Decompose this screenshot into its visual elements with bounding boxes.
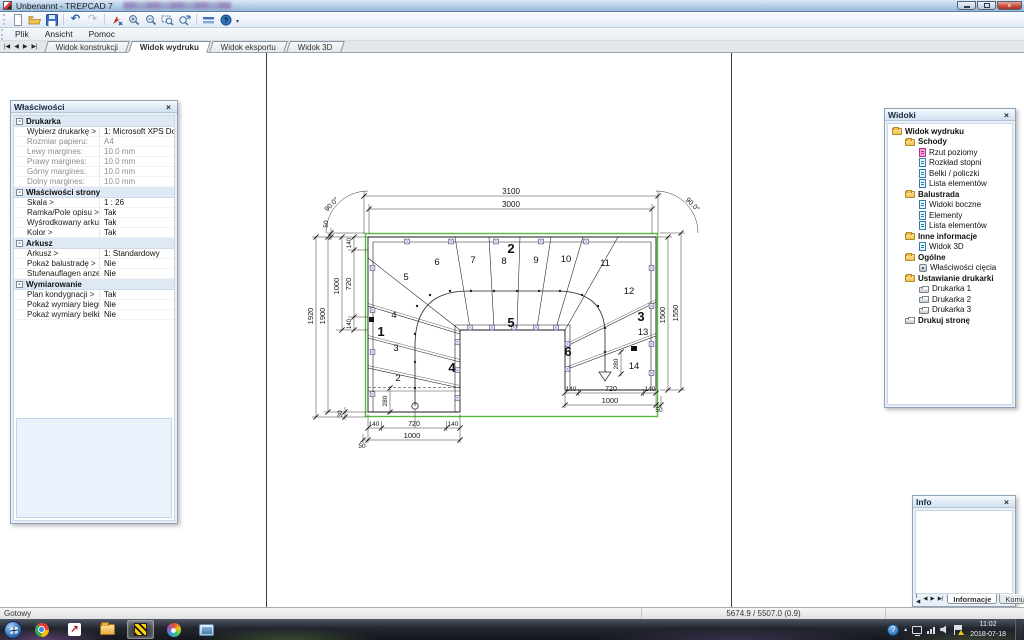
tree-item-lista-elementow-2[interactable]: Lista elementów [888,221,1012,232]
section-marks [369,317,637,351]
close-icon[interactable]: × [163,102,174,112]
tree-label: Ustawianie drukarki [918,274,994,283]
next-tab-icon[interactable]: ▶ [930,596,934,602]
group-label: Arkusz [26,239,53,248]
property-row[interactable]: Skala >1 : 26 [14,198,174,208]
tree-label: Drukarka 1 [932,284,971,293]
step-number: 14 [629,361,640,372]
collapse-icon[interactable]: - [16,189,23,196]
collapse-icon[interactable]: - [16,281,23,288]
menubar-grip[interactable] [1,29,4,40]
close-button[interactable]: × [997,1,1022,10]
step-number: 6 [434,257,439,268]
tree-item-balustrada[interactable]: Balustrada [888,189,1012,200]
tab-widok-wydruku[interactable]: Widok wydruku [128,41,211,53]
panel-title: Widoki [888,110,916,120]
property-label: Lewy margines: [14,147,100,156]
group-label: Właściwości strony [26,188,100,197]
folder-icon [905,139,915,146]
property-row[interactable]: Wyśrodkowany arkusz...Tak [14,218,174,228]
new-document-button[interactable] [9,13,26,27]
property-row[interactable]: Prawy margines:10.0 mm [14,157,174,167]
tab-navigation: |◀ ◀ ▶ ▶| [0,43,46,52]
app-icon [3,1,12,10]
property-value: Tak [100,290,116,299]
trepcad-icon [134,623,147,636]
paint-icon [167,623,181,637]
close-icon: × [1007,2,1011,10]
zoom-in-icon [128,14,140,26]
property-row[interactable]: Kolor >Tak [14,228,174,238]
beam-number: 1 [377,324,384,339]
folder-icon [905,275,915,282]
printer-icon [919,297,929,303]
tab-widok-konstrukcji[interactable]: Widok konstrukcji [44,41,130,52]
menubar: Plik Ansicht Pomoc [0,28,1024,41]
dim-label: 1920 [306,308,315,325]
clock-time: 11:02 [970,620,1006,629]
folder-icon [905,233,915,240]
maximize-button[interactable] [977,1,996,10]
dim-label: 50 [323,220,330,228]
property-value: 1 : 26 [100,198,124,207]
dim-label: 140 [369,421,380,428]
tree-item-lista-elementow[interactable]: Lista elementów [888,179,1012,190]
redo-icon: ↷ [88,14,97,25]
zoom-window-icon [161,14,174,26]
property-label: Wybierz drukarkę > [14,127,100,136]
move-tool-button[interactable] [108,13,125,27]
step-number: 8 [501,256,506,267]
property-group-strony[interactable]: -Właściwości strony [14,187,174,198]
step-number: 11 [600,258,610,269]
paper-edge-left [266,53,267,607]
close-icon[interactable]: × [1001,497,1012,507]
tree-item-drukarka-2[interactable]: Drukarka 2 [888,294,1012,305]
properties-panel: Właściwości × -Drukarka Wybierz drukarkę… [10,100,178,524]
navigator-icon: ↗ [68,623,81,636]
page-icon [919,169,926,178]
status-text: Gotowy [0,609,641,618]
beam-number: 3 [637,309,644,324]
views-panel: Widoki × Widok wydruku Schody Rzut pozio… [884,108,1016,408]
tree-item-inne-informacje[interactable]: Inne informacje [888,231,1012,242]
property-row[interactable]: Plan kondygnacji >Tak [14,290,174,300]
dim-label: 720 [344,278,353,291]
clock-date: 2018-07-18 [970,630,1006,639]
redo-button[interactable]: ↷ [84,13,101,27]
page-icon [919,221,926,230]
open-button[interactable] [26,13,43,27]
last-tab-icon[interactable]: ▶| [31,43,37,50]
minimize-icon [964,6,970,8]
measure-button[interactable] [200,13,217,27]
property-label: Kolor > [14,228,100,237]
tree-item-wlasciwosci-ciecia[interactable]: Właściwości cięcia [888,263,1012,274]
tree-item-rzut-poziomy[interactable]: Rzut poziomy [888,147,1012,158]
property-label: Pokaż wymiary biegu > [14,300,100,309]
property-row[interactable]: Pokaż wymiary belki >Nie [14,310,174,320]
save-icon [46,14,58,26]
taskbar-navigator-button[interactable]: ↗ [61,620,88,639]
dim-label: 280 [382,395,389,406]
last-tab-icon[interactable]: ▶| [938,596,944,602]
dim-label: 140 [347,237,353,248]
tree-item-drukarka-1[interactable]: Drukarka 1 [888,284,1012,295]
step-number: 13 [638,327,649,338]
folder-icon [905,254,915,261]
tab-label: Widok 3D [298,43,333,52]
info-tab-komunikaty[interactable]: Komun [999,594,1024,604]
property-value: Tak [100,208,116,217]
property-grid: -Drukarka Wybierz drukarkę >1: Microsoft… [14,116,174,320]
paper-edge-right [731,53,732,607]
dim-label: 1500 [658,307,667,324]
property-label: Plan kondygnacji > [14,290,100,299]
info-content [915,510,1013,594]
property-label: Ramka/Pole opisu > [14,208,100,217]
tree-label: Schody [918,137,947,146]
property-label: Arkusz > [14,249,100,258]
tab-label: Informacje [953,595,991,604]
toolbar-separator [63,14,64,25]
dim-label: 3100 [502,187,520,196]
tab-label: Widok eksportu [221,43,276,52]
tree-item-widok-3d[interactable]: Widok 3D [888,242,1012,253]
photo-viewer-icon [199,624,214,636]
printer-icon [919,287,929,293]
property-row[interactable]: Ramka/Pole opisu >Tak [14,208,174,218]
undo-button[interactable]: ↶ [67,13,84,27]
step-number: 9 [533,255,538,266]
property-value: 1: Standardowy [100,249,160,258]
close-icon[interactable]: × [1001,110,1012,120]
help-button[interactable]: ? [217,13,234,27]
dim-label: 1000 [602,396,619,405]
property-row[interactable]: Pokaż wymiary biegu >Nie [14,300,174,310]
property-value: 10.0 mm [100,167,135,176]
property-label: Pokaż balustradę > [14,259,100,268]
toolbar-separator [104,14,105,25]
page-icon [919,158,926,167]
dim-label: 1000 [332,278,341,295]
drawing-canvas[interactable]: 3100 3000 90.0° 90.0° 1920 1900 1000 720… [0,53,1024,607]
tab-widok-3d[interactable]: Widok 3D [286,41,344,52]
folder-icon [892,128,902,135]
open-folder-icon [28,14,41,26]
angle-label: 90.0° [323,196,340,213]
menu-pomoc[interactable]: Pomoc [81,28,123,40]
page-icon [919,242,926,251]
property-row[interactable]: Stufenauflagen anzeig...Nie [14,269,174,279]
beam-number: 4 [448,360,456,375]
property-description-box [16,418,172,518]
taskbar-trepcad-button[interactable] [127,620,154,639]
step-number: 7 [470,255,475,266]
titlebar-watermark [123,2,231,9]
tree-item-belki-policzki[interactable]: Belki / policzki [888,168,1012,179]
titlebar[interactable]: Unbenannt - TREPCAD 7 × [0,0,1024,12]
tree-label: Ogólne [918,253,946,262]
tab-label: Komun [1005,595,1024,604]
tree-item-ogolne[interactable]: Ogólne [888,252,1012,263]
zoom-fit-icon [178,14,191,26]
property-value: Nie [100,300,116,309]
taskbar-explorer-button[interactable] [94,620,121,639]
property-row[interactable]: Wybierz drukarkę >1: Microsoft XPS Docum… [14,127,174,137]
tree-item-schody[interactable]: Schody [888,137,1012,148]
tree-label: Widok wydruku [905,127,964,136]
property-label: Prawy margines: [14,157,100,166]
property-value: 10.0 mm [100,157,135,166]
property-label: Górny margines: [14,167,100,176]
step-number: 3 [393,343,398,354]
toolbar-grip[interactable] [3,14,6,25]
step-number: 10 [561,254,572,265]
dim-label: 1000 [404,431,421,440]
info-panel: Info × |◀ ◀ ▶ ▶| Informacje Komun [912,495,1016,607]
dim-label: 280 [613,358,620,369]
page-icon [919,200,926,209]
tree-label: Belki / policzki [929,169,979,178]
property-value: A4 [100,137,114,146]
arrow-glyph: ↗ [70,625,78,635]
tree-label: Rozkład stopni [929,158,981,167]
network-icon[interactable] [912,626,922,634]
property-grid-empty-area [14,320,174,416]
page-icon [919,211,926,220]
tree-label: Rzut poziomy [929,148,977,157]
collapse-icon[interactable]: - [16,240,23,247]
dim-label: 30 [337,410,344,418]
property-group-arkusz[interactable]: -Arkusz [14,238,174,249]
new-document-icon [12,14,24,26]
printer-icon [905,318,915,324]
tray-clock[interactable]: 11:02 2018-07-18 [970,620,1006,639]
tree-item-rozklad-stopni[interactable]: Rozkład stopni [888,158,1012,169]
tab-label: Widok konstrukcji [55,43,117,52]
tree-label: Balustrada [918,190,959,199]
info-tab-navigation: |◀ ◀ ▶ ▶| [916,594,943,604]
signal-icon[interactable] [927,626,935,634]
move-tool-icon [111,14,123,26]
dim-label: 140 [347,318,353,329]
property-row[interactable]: Górny margines:10.0 mm [14,167,174,177]
property-value: 1: Microsoft XPS Docume... [100,127,174,136]
tree-label: Drukarka 2 [932,295,971,304]
property-row[interactable]: Lewy margines:10.0 mm [14,147,174,157]
tree-label: Drukuj stronę [918,316,970,325]
help-icon: ? [220,14,232,26]
dim-label: 50 [655,407,663,414]
toolbar-separator [196,14,197,25]
step-number: 4 [391,310,396,321]
tree-label: Lista elementów [929,179,987,188]
tree-label: Drukarka 3 [932,305,971,314]
dim-label: 140 [566,386,577,393]
menu-plik[interactable]: Plik [7,28,37,40]
zoom-fit-button[interactable] [176,13,193,27]
zoom-out-icon [145,14,157,26]
statusbar-right-cell [886,608,1024,619]
help-glyph: ? [891,626,895,634]
property-row[interactable]: Arkusz >1: Standardowy [14,249,174,259]
chrome-icon [35,623,49,637]
undo-icon: ↶ [71,14,80,25]
dim-label: 3000 [502,200,520,209]
beam-number: 5 [507,315,514,330]
toolbar-overflow-icon[interactable]: ▾ [236,18,239,27]
next-tab-icon[interactable]: ▶ [23,43,28,50]
property-label: Pokaż wymiary belki > [14,310,100,319]
views-tree: Widok wydruku Schody Rzut poziomy Rozkła… [887,123,1013,405]
prev-tab-icon[interactable]: ◀ [923,596,927,602]
action-center-flag-icon[interactable] [954,625,963,635]
save-button[interactable] [43,13,60,27]
taskbar-chrome-button[interactable] [28,620,55,639]
beam-number: 6 [564,344,571,359]
property-value: Tak [100,218,116,227]
dim-label: 1550 [671,305,680,322]
tree-label: Właściwości cięcia [930,263,996,272]
dim-label: 720 [408,421,420,428]
tree-item-drukarka-3[interactable]: Drukarka 3 [888,305,1012,316]
volume-icon[interactable] [940,625,949,634]
property-row[interactable]: Dolny margines:10.0 mm [14,177,174,187]
taskbar-photo-viewer-button[interactable] [193,620,220,639]
step-number: 12 [624,286,635,297]
start-button[interactable] [4,621,22,639]
step-number: 2 [395,373,400,384]
tab-widok-eksportu[interactable]: Widok eksportu [209,41,288,52]
property-value: 10.0 mm [100,147,135,156]
zoom-in-button[interactable] [125,13,142,27]
page-icon [919,179,926,188]
dim-label: 140 [645,386,656,393]
angle-label: 90.0° [684,196,701,213]
property-row[interactable]: Rozmiar papieru:A4 [14,137,174,147]
dim-label: 1900 [318,308,327,325]
measure-icon [202,14,215,26]
tree-label: Elementy [929,211,962,220]
toolbar: ↶ ↷ ? ▾ [0,12,1024,28]
property-label: Wyśrodkowany arkusz... [14,218,100,227]
svg-text:?: ? [223,15,228,24]
dim-label: 140 [448,421,459,428]
property-row[interactable]: Pokaż balustradę >Nie [14,259,174,269]
tree-item-ustawianie-drukarki[interactable]: Ustawianie drukarki [888,273,1012,284]
window-title: Unbenannt - TREPCAD 7 [16,1,113,11]
first-tab-icon[interactable]: |◀ [916,593,920,605]
property-value: Nie [100,310,116,319]
panel-title: Info [916,497,932,507]
panel-title: Właściwości [14,102,65,112]
zoom-out-button[interactable] [142,13,159,27]
tree-label: Widok 3D [929,242,964,251]
show-desktop-button[interactable] [1015,619,1023,640]
zoom-window-button[interactable] [159,13,176,27]
info-panel-titlebar[interactable]: Info × [913,496,1015,508]
info-tabstrip: |◀ ◀ ▶ ▶| Informacje Komun [913,594,1015,606]
maximize-icon [984,3,990,8]
group-label: Drukarka [26,117,61,126]
tray-expand-icon[interactable]: ▴ [904,626,907,633]
property-label: Skala > [14,198,100,207]
tree-item-widoki-boczne[interactable]: Widoki boczne [888,200,1012,211]
property-label: Stufenauflagen anzeig... [14,269,100,278]
minimize-button[interactable] [957,1,976,10]
first-tab-icon[interactable]: |◀ [4,43,10,50]
walking-line [412,290,611,409]
group-label: Wymiarowanie [26,280,82,289]
tree-item-elementy[interactable]: Elementy [888,210,1012,221]
tab-label: Widok wydruku [140,43,199,52]
property-group-drukarka[interactable]: -Drukarka [14,116,174,127]
cursor-coordinates: 5674.9 / 5507.0 (0.9) [641,608,886,619]
tool-icon [919,264,927,272]
step-numbers: 2 3 4 5 6 7 8 9 10 11 12 13 14 [391,254,648,384]
tree-label: Widoki boczne [929,200,981,209]
page-pink-icon [919,148,926,157]
property-value: 10.0 mm [100,177,135,186]
views-panel-titlebar[interactable]: Widoki × [885,109,1015,121]
properties-panel-titlebar[interactable]: Właściwości × [11,101,177,113]
staircase-drawing: 3100 3000 90.0° 90.0° 1920 1900 1000 720… [280,182,720,462]
tray-help-icon[interactable]: ? [887,624,899,636]
view-tabstrip: |◀ ◀ ▶ ▶| Widok konstrukcji Widok wydruk… [0,41,1024,53]
beam-number: 2 [507,241,514,256]
trepcad-window: Unbenannt - TREPCAD 7 × ↶ ↷ [0,0,1024,640]
tree-item-drukuj-strone[interactable]: Drukuj stronę [888,315,1012,326]
taskbar: ↗ ? ▴ 11:02 2018-07-18 [0,619,1024,640]
printer-icon [919,308,929,314]
step-number: 5 [403,272,408,283]
property-value: Tak [100,228,116,237]
file-explorer-icon [100,624,115,635]
property-value: Nie [100,269,116,278]
property-group-wymiarowanie[interactable]: -Wymiarowanie [14,279,174,290]
tree-item-widok-wydruku[interactable]: Widok wydruku [888,126,1012,137]
dim-label: 720 [605,386,617,393]
property-value: Nie [100,259,116,268]
property-label: Rozmiar papieru: [14,137,100,146]
property-label: Dolny margines: [14,177,100,186]
collapse-icon[interactable]: - [16,118,23,125]
info-tab-informacje[interactable]: Informacje [947,594,997,604]
taskbar-paint-button[interactable] [160,620,187,639]
prev-tab-icon[interactable]: ◀ [14,43,19,50]
folder-icon [905,191,915,198]
statusbar: Gotowy 5674.9 / 5507.0 (0.9) [0,607,1024,619]
tree-label: Lista elementów [929,221,987,230]
system-tray: ? ▴ 11:02 2018-07-18 [887,619,1024,640]
dim-label: 50 [358,443,366,450]
menu-ansicht[interactable]: Ansicht [37,28,81,40]
tree-label: Inne informacje [918,232,977,241]
